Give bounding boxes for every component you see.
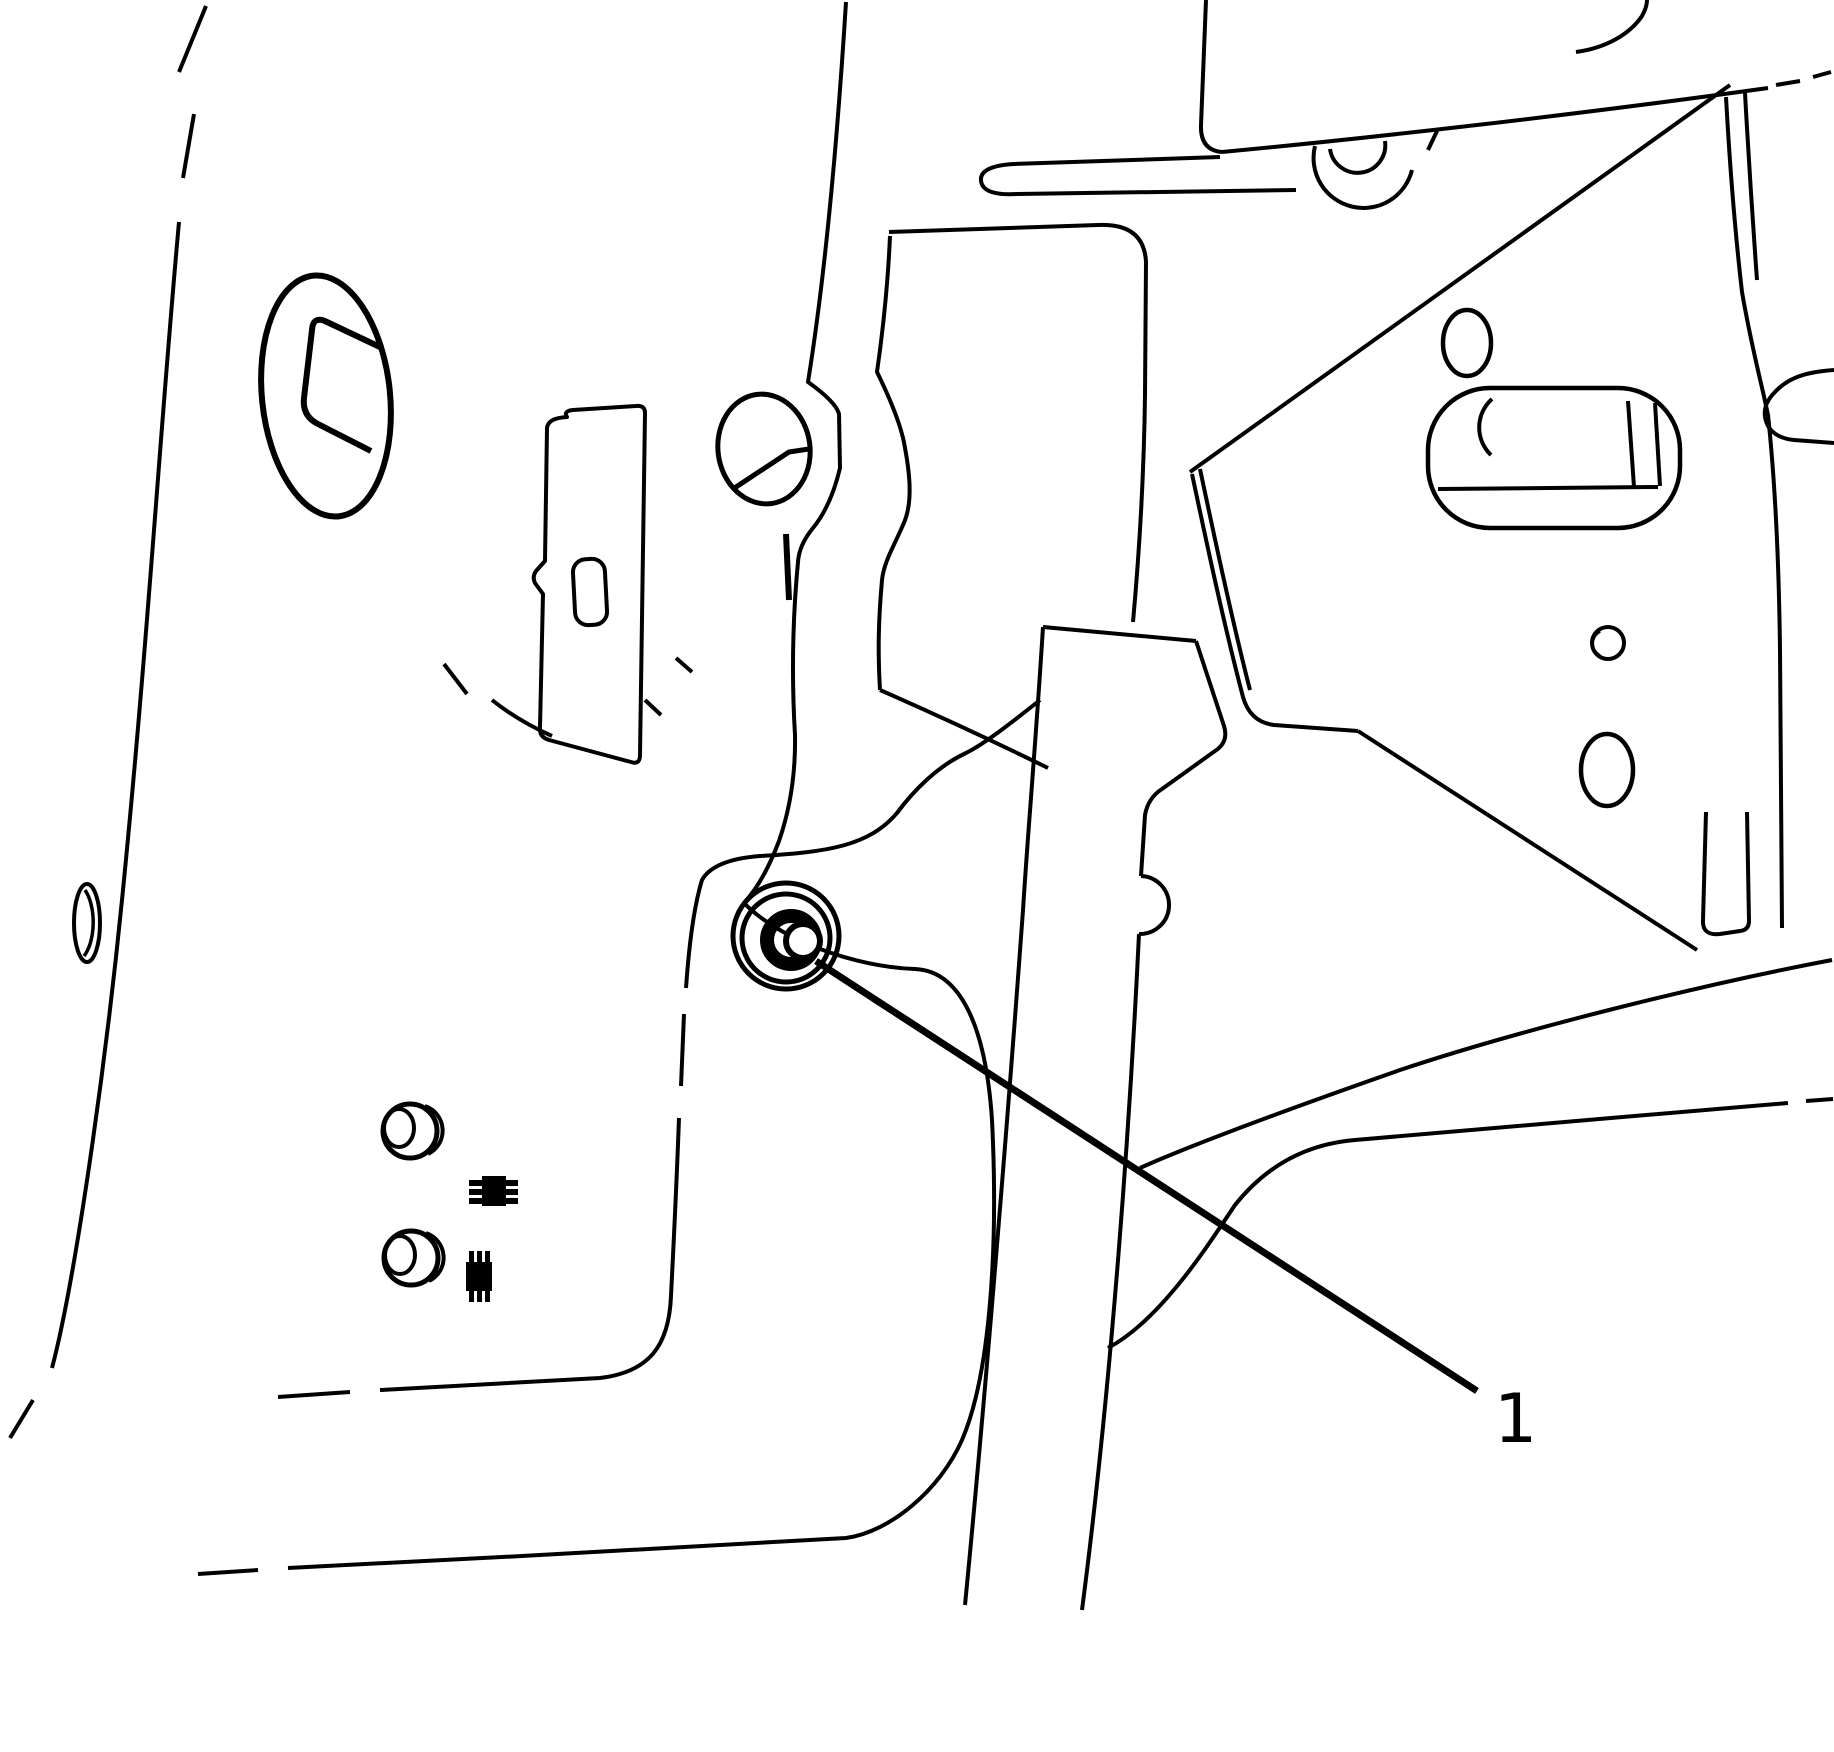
brace-slot-chord (1438, 487, 1658, 489)
fastener-bolt-head (786, 924, 820, 958)
rocker-lower-dash (1806, 1099, 1833, 1101)
vehicle-body-illustration: 1 (0, 0, 1834, 1752)
diagram-canvas: 1 (0, 0, 1834, 1752)
background (0, 0, 1834, 1752)
retainer-clip-upper (469, 1176, 518, 1206)
flange-seam-bold (786, 534, 789, 600)
callout-label-1: 1 (1494, 1380, 1537, 1459)
retainer-clip-lower (466, 1251, 492, 1302)
